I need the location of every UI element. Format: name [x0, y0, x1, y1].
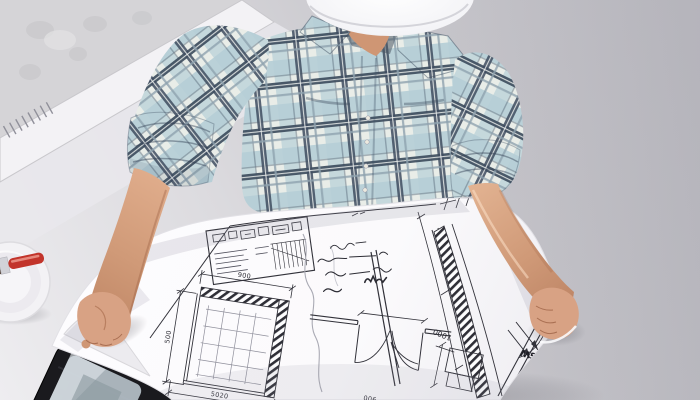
photo-stage: 900 500 5020 900: [0, 0, 700, 400]
scene-photo: 900 500 5020 900: [0, 0, 700, 400]
